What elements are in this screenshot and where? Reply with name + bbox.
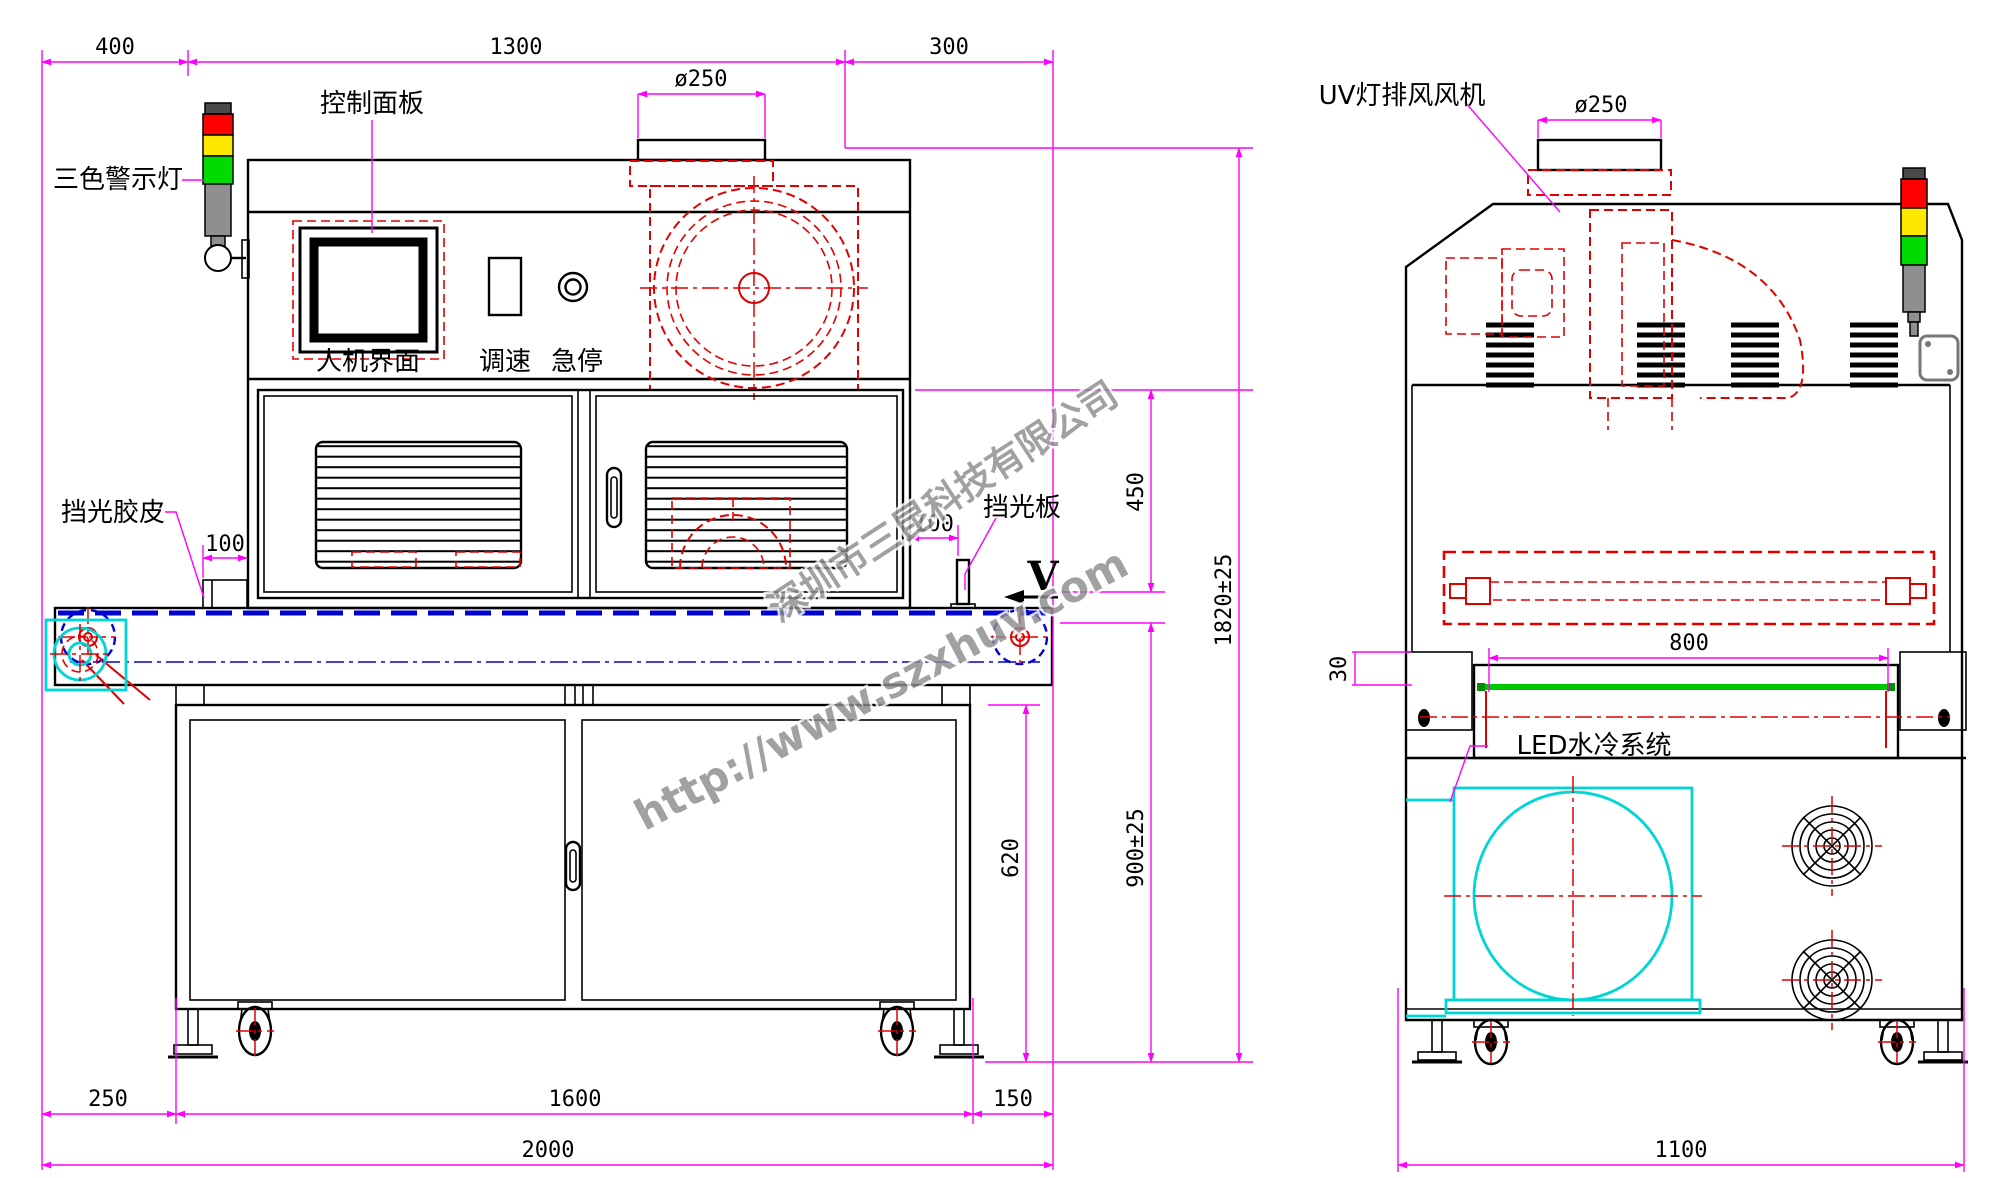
front-view: [46, 103, 1052, 1057]
hmi-screen[interactable]: [293, 221, 444, 359]
cad-drawing-uv-curing-machine: 400 1300 300 ø250 三色警示灯 控制面板 人机界面 调速 急停 …: [0, 0, 1991, 1178]
conveyor-side: [1406, 652, 1966, 758]
leveling-foot-right: [934, 1009, 984, 1057]
vent-slats-4: [1850, 318, 1898, 392]
dim-1600: 1600: [549, 1087, 602, 1112]
label-water-cooling: LED水冷系统: [1517, 731, 1672, 761]
dim-1100: 1100: [1655, 1138, 1708, 1163]
exhaust-duct-side: [1538, 140, 1661, 170]
dim-100-left: 100: [205, 532, 245, 557]
label-warning-light: 三色警示灯: [53, 165, 183, 195]
vent-slats-1: [1486, 318, 1534, 392]
fan-grille-bottom: [1782, 930, 1882, 1030]
dim-2000: 2000: [522, 1138, 575, 1163]
label-exhaust-fan: UV灯排风风机: [1319, 81, 1486, 111]
label-speed: 调速: [479, 347, 531, 377]
dim-400: 400: [95, 35, 135, 60]
dim-150: 150: [993, 1087, 1033, 1112]
vent-slats-3: [1731, 318, 1779, 392]
warning-light-tower: [203, 103, 249, 278]
dim-1300: 1300: [490, 35, 543, 60]
dim-dia250-front: ø250: [675, 67, 728, 92]
light-shield-plate-block: [957, 560, 969, 604]
label-shield-plate: 挡光板: [983, 493, 1061, 523]
side-feet-casters: [1412, 1020, 1968, 1064]
caster-left: [236, 1002, 274, 1056]
label-control-panel: 控制面板: [320, 89, 424, 119]
vent-slats-2: [1637, 318, 1685, 392]
label-hmi: 人机界面: [316, 347, 420, 377]
warning-light-side: [1901, 168, 1958, 380]
drawing-sheet: 400 1300 300 ø250 三色警示灯 控制面板 人机界面 调速 急停 …: [0, 0, 1991, 1178]
warning-red-segment: [203, 114, 233, 135]
warning-yellow-segment: [203, 135, 233, 156]
speed-control[interactable]: [489, 258, 521, 315]
caster-right: [878, 1002, 916, 1056]
left-louver-vent: [316, 442, 521, 568]
dim-620: 620: [999, 838, 1024, 878]
dim-800: 800: [1669, 631, 1709, 656]
exhaust-duct-front: [638, 140, 765, 160]
right-louver-vent: [646, 442, 847, 568]
dim-dia250-side: ø250: [1575, 93, 1628, 118]
side-view: [1406, 140, 1968, 1064]
light-shield-rubber-block: [203, 580, 247, 608]
watermark-url: http://www.szxhuv.com: [626, 538, 1136, 840]
emergency-stop-button[interactable]: [559, 273, 587, 301]
dim-250: 250: [88, 1087, 128, 1112]
stand-left-door[interactable]: [190, 720, 565, 1000]
dim-1820: 1820±25: [1212, 554, 1237, 647]
warning-green-segment: [203, 156, 233, 184]
lower-stand-front: [168, 685, 984, 1057]
fan-grille-top: [1782, 796, 1882, 896]
dim-900: 900±25: [1124, 808, 1149, 887]
dim-30: 30: [1327, 656, 1352, 683]
uv-lamp-hidden-detail: [1444, 552, 1934, 624]
label-shield-rubber: 挡光胶皮: [61, 498, 165, 528]
dim-450: 450: [1124, 472, 1149, 512]
dim-300: 300: [929, 35, 969, 60]
blower-hidden-detail: [640, 176, 868, 400]
label-estop: 急停: [551, 347, 603, 377]
